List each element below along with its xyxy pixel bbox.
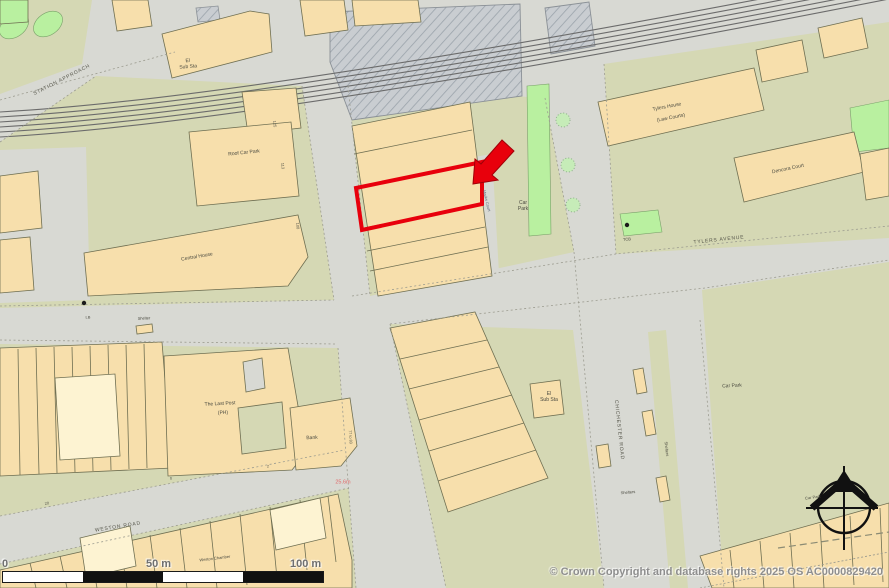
copyright-notice: © Crown Copyright and database rights 20… [549, 566, 883, 578]
scale-fifty: 50 m [146, 558, 171, 570]
scale-bar: 0 50 m 100 m [2, 571, 324, 583]
scale-segment [3, 572, 83, 582]
scale-bar-segments [2, 571, 324, 583]
scale-hundred: 100 m [290, 558, 321, 570]
scale-segment [243, 572, 323, 582]
scale-zero: 0 [2, 558, 8, 570]
os-map: STATION APPROACH El Sub Sta Roof Car Par… [0, 0, 889, 588]
map-canvas [0, 0, 889, 588]
scale-segment [163, 572, 243, 582]
scale-segment [83, 572, 163, 582]
